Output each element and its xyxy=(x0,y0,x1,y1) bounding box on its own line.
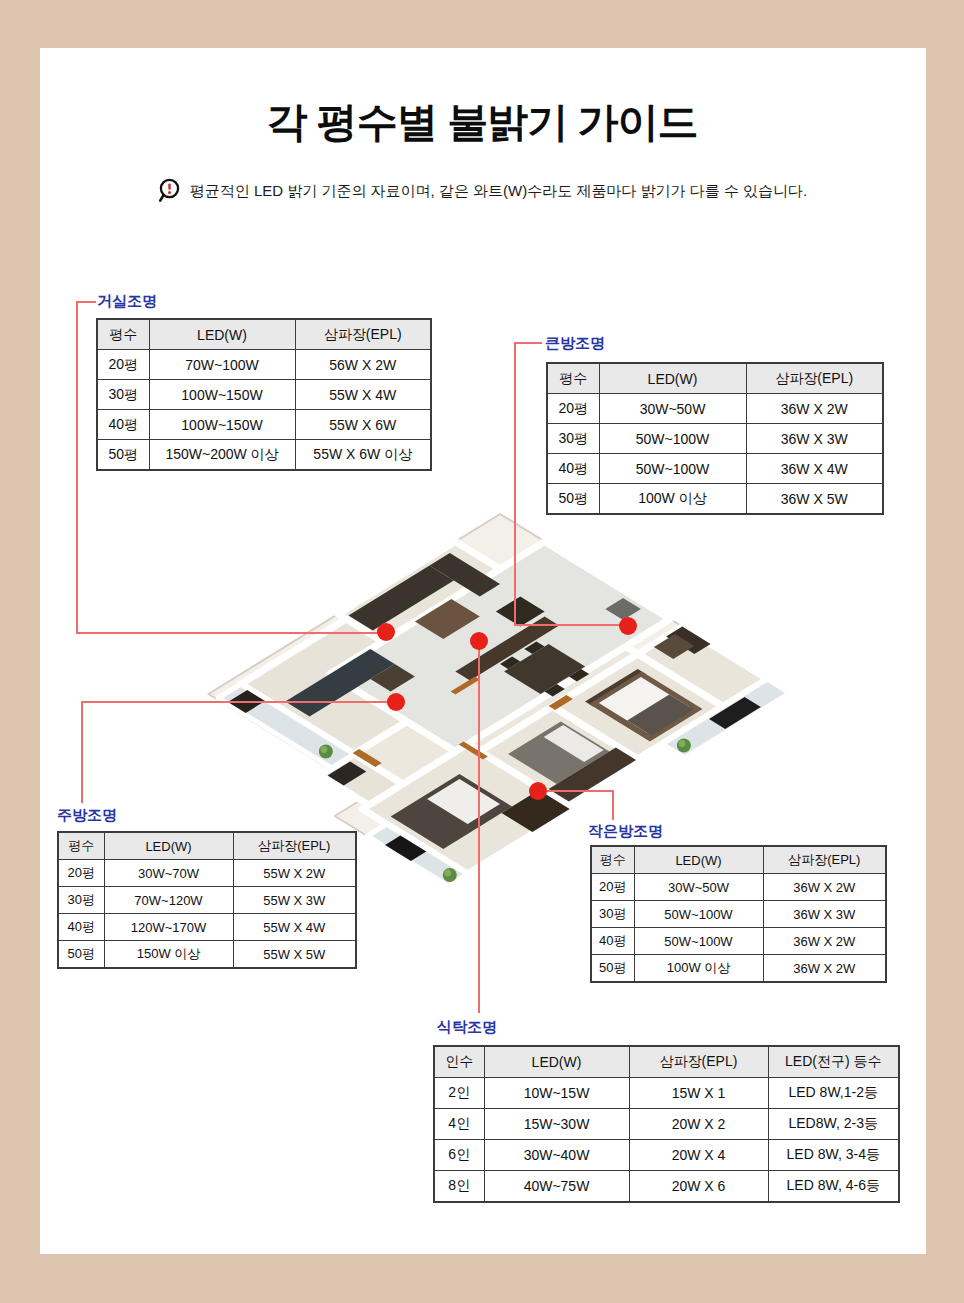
table-cell: 150W~200W 이상 xyxy=(149,440,295,471)
table-row: 40평50W~100W36W X 4W xyxy=(547,454,883,484)
table-cell: 55W X 6W xyxy=(295,410,431,440)
table-cell: 100W 이상 xyxy=(599,484,746,515)
small-room-lighting-label: 작은방조명 xyxy=(588,822,663,841)
table-row: 30평50W~100W36W X 3W xyxy=(547,424,883,454)
callout-line-kitchen-horizontal xyxy=(81,701,397,703)
table-cell: 20평 xyxy=(97,350,149,380)
table-cell: 55W X 4W xyxy=(295,380,431,410)
callout-line-bigroom-stub xyxy=(514,342,542,344)
infographic-page: { "header": { "title": "각 평수별 불밝기 가이드", … xyxy=(0,0,964,1303)
callout-line-smallroom-vertical xyxy=(612,790,614,820)
callout-line-dining-vertical xyxy=(478,641,480,1013)
notice-text: 평균적인 LED 밝기 기준의 자료이며, 같은 와트(W)수라도 제품마다 밝… xyxy=(190,182,808,201)
table-cell: 36W X 4W xyxy=(746,454,883,484)
table-cell: 30W~40W xyxy=(484,1140,629,1171)
table-cell: 55W X 2W xyxy=(233,860,356,887)
table-cell: 55W X 5W xyxy=(233,941,356,969)
table-cell: 36W X 2W xyxy=(763,928,886,955)
table-cell: 70W~100W xyxy=(149,350,295,380)
table-row: 30평100W~150W55W X 4W xyxy=(97,380,431,410)
dining-lighting-label: 식탁조명 xyxy=(437,1018,497,1037)
kitchen-marker-dot xyxy=(387,693,405,711)
small-room-lighting-table: 평수LED(W)삼파장(EPL)20평30W~50W36W X 2W30평50W… xyxy=(590,845,887,983)
table-row: 20평30W~50W36W X 2W xyxy=(547,394,883,424)
callout-line-smallroom-horizontal xyxy=(538,790,614,792)
table-cell: 36W X 2W xyxy=(763,955,886,983)
table-cell: 36W X 2W xyxy=(763,874,886,901)
big-room-lighting-label: 큰방조명 xyxy=(545,334,605,353)
table-row: 2인10W~15W15W X 1LED 8W,1-2등 xyxy=(434,1078,899,1109)
column-header: 평수 xyxy=(547,363,599,394)
table-row: 40평50W~100W36W X 2W xyxy=(591,928,886,955)
table-cell: 40평 xyxy=(591,928,634,955)
table-cell: 40평 xyxy=(547,454,599,484)
column-header: LED(W) xyxy=(149,319,295,350)
table-cell: 36W X 2W xyxy=(746,394,883,424)
table-cell: 40평 xyxy=(97,410,149,440)
table-cell: 55W X 4W xyxy=(233,914,356,941)
table-row: 50평100W 이상36W X 2W xyxy=(591,955,886,983)
big-room-lighting-table: 평수LED(W)삼파장(EPL)20평30W~50W36W X 2W30평50W… xyxy=(546,362,884,515)
table-row: 20평30W~50W36W X 2W xyxy=(591,874,886,901)
table-cell: 30W~70W xyxy=(104,860,233,887)
table-cell: LED8W, 2-3등 xyxy=(768,1109,899,1140)
table-cell: 30W~50W xyxy=(634,874,763,901)
table-cell: 55W X 3W xyxy=(233,887,356,914)
table-cell: 50W~100W xyxy=(634,901,763,928)
column-header: LED(W) xyxy=(104,832,233,860)
callout-line-kitchen-vertical xyxy=(81,701,83,803)
living-room-marker-dot xyxy=(377,623,395,641)
table-cell: 50평 xyxy=(97,440,149,471)
column-header: 평수 xyxy=(591,846,634,874)
table-row: 8인40W~75W20W X 6LED 8W, 4-6등 xyxy=(434,1171,899,1203)
table-row: 30평70W~120W55W X 3W xyxy=(58,887,356,914)
table-row: 50평150W~200W 이상55W X 6W 이상 xyxy=(97,440,431,471)
column-header: 인수 xyxy=(434,1046,484,1078)
dining-lighting-table: 인수LED(W)삼파장(EPL)LED(전구) 등수2인10W~15W15W X… xyxy=(433,1045,900,1203)
table-cell: 50W~100W xyxy=(634,928,763,955)
plant-icon xyxy=(444,870,451,877)
column-header: 삼파장(EPL) xyxy=(295,319,431,350)
callout-line-living-vertical xyxy=(76,301,78,634)
table-cell: 30평 xyxy=(58,887,104,914)
table-cell: 15W X 1 xyxy=(629,1078,768,1109)
big-room-marker-dot xyxy=(619,617,637,635)
table-cell: 20W X 2 xyxy=(629,1109,768,1140)
table-cell: LED 8W, 4-6등 xyxy=(768,1171,899,1203)
magnifier-exclamation-icon xyxy=(157,178,181,204)
table-cell: 20평 xyxy=(547,394,599,424)
table-cell: 40W~75W xyxy=(484,1171,629,1203)
table-cell: 30평 xyxy=(547,424,599,454)
page-title: 각 평수별 불밝기 가이드 xyxy=(0,95,964,150)
notice-row: 평균적인 LED 밝기 기준의 자료이며, 같은 와트(W)수라도 제품마다 밝… xyxy=(0,178,964,204)
table-row: 30평50W~100W36W X 3W xyxy=(591,901,886,928)
plant-icon xyxy=(678,740,685,747)
table-cell: 50평 xyxy=(58,941,104,969)
callout-line-bigroom-horizontal xyxy=(514,624,630,626)
column-header: 삼파장(EPL) xyxy=(763,846,886,874)
plant-icon xyxy=(320,746,327,753)
header-row: 평수LED(W)삼파장(EPL) xyxy=(97,319,431,350)
table-cell: 20W X 4 xyxy=(629,1140,768,1171)
living-lighting-table: 평수LED(W)삼파장(EPL)20평70W~100W56W X 2W30평10… xyxy=(96,318,432,471)
table-cell: 50평 xyxy=(591,955,634,983)
kitchen-lighting-label: 주방조명 xyxy=(57,806,117,825)
table-cell: 10W~15W xyxy=(484,1078,629,1109)
column-header: 삼파장(EPL) xyxy=(629,1046,768,1078)
callout-line-bigroom-vertical xyxy=(514,342,516,626)
table-cell: 55W X 6W 이상 xyxy=(295,440,431,471)
table-cell: 100W~150W xyxy=(149,380,295,410)
header-row: 인수LED(W)삼파장(EPL)LED(전구) 등수 xyxy=(434,1046,899,1078)
column-header: LED(W) xyxy=(634,846,763,874)
column-header: LED(W) xyxy=(484,1046,629,1078)
table-cell: LED 8W,1-2등 xyxy=(768,1078,899,1109)
table-cell: 100W 이상 xyxy=(634,955,763,983)
table-cell: 50평 xyxy=(547,484,599,515)
table-cell: 20평 xyxy=(58,860,104,887)
table-cell: 50W~100W xyxy=(599,454,746,484)
column-header: LED(W) xyxy=(599,363,746,394)
table-cell: 150W 이상 xyxy=(104,941,233,969)
table-cell: 100W~150W xyxy=(149,410,295,440)
table-cell: 20평 xyxy=(591,874,634,901)
table-row: 20평30W~70W55W X 2W xyxy=(58,860,356,887)
header-row: 평수LED(W)삼파장(EPL) xyxy=(547,363,883,394)
table-cell: 36W X 3W xyxy=(746,424,883,454)
living-lighting-label: 거실조명 xyxy=(97,292,157,311)
table-cell: 120W~170W xyxy=(104,914,233,941)
column-header: 평수 xyxy=(58,832,104,860)
table-cell: 36W X 5W xyxy=(746,484,883,515)
column-header: LED(전구) 등수 xyxy=(768,1046,899,1078)
table-cell: 50W~100W xyxy=(599,424,746,454)
table-row: 4인15W~30W20W X 2LED8W, 2-3등 xyxy=(434,1109,899,1140)
table-cell: 36W X 3W xyxy=(763,901,886,928)
table-cell: 4인 xyxy=(434,1109,484,1140)
header-row: 평수LED(W)삼파장(EPL) xyxy=(58,832,356,860)
table-cell: 2인 xyxy=(434,1078,484,1109)
column-header: 삼파장(EPL) xyxy=(233,832,356,860)
table-cell: 56W X 2W xyxy=(295,350,431,380)
header-row: 평수LED(W)삼파장(EPL) xyxy=(591,846,886,874)
table-row: 6인30W~40W20W X 4LED 8W, 3-4등 xyxy=(434,1140,899,1171)
dining-table-marker-dot xyxy=(470,632,488,650)
table-cell: 15W~30W xyxy=(484,1109,629,1140)
table-cell: 8인 xyxy=(434,1171,484,1203)
table-row: 50평150W 이상55W X 5W xyxy=(58,941,356,969)
table-cell: 30W~50W xyxy=(599,394,746,424)
table-row: 20평70W~100W56W X 2W xyxy=(97,350,431,380)
table-cell: 30평 xyxy=(591,901,634,928)
table-cell: 30평 xyxy=(97,380,149,410)
callout-line-living-stub xyxy=(76,301,96,303)
table-row: 50평100W 이상36W X 5W xyxy=(547,484,883,515)
callout-line-living-horizontal xyxy=(76,632,388,634)
table-cell: 70W~120W xyxy=(104,887,233,914)
table-cell: 6인 xyxy=(434,1140,484,1171)
column-header: 삼파장(EPL) xyxy=(746,363,883,394)
table-cell: LED 8W, 3-4등 xyxy=(768,1140,899,1171)
table-row: 40평120W~170W55W X 4W xyxy=(58,914,356,941)
kitchen-lighting-table: 평수LED(W)삼파장(EPL)20평30W~70W55W X 2W30평70W… xyxy=(57,831,357,969)
column-header: 평수 xyxy=(97,319,149,350)
table-cell: 40평 xyxy=(58,914,104,941)
table-cell: 20W X 6 xyxy=(629,1171,768,1203)
small-room-marker-dot xyxy=(529,782,547,800)
table-row: 40평100W~150W55W X 6W xyxy=(97,410,431,440)
